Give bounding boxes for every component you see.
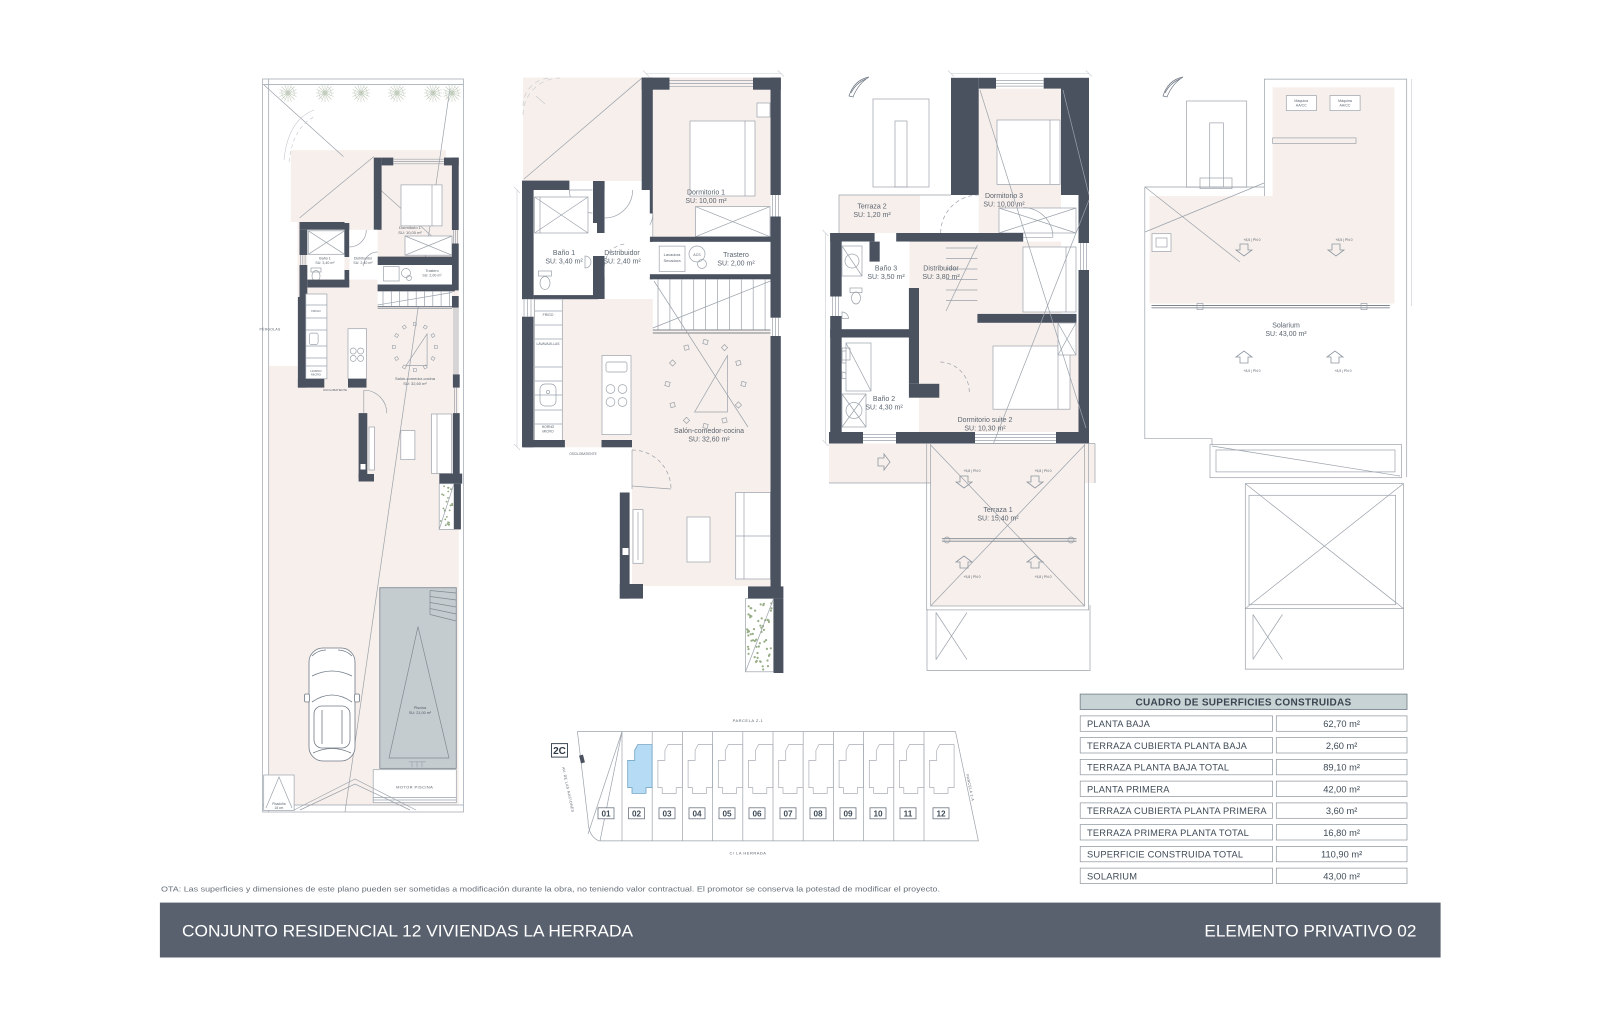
svg-text:ACS: ACS <box>693 253 701 257</box>
svg-text:Máquina: Máquina <box>1338 99 1352 103</box>
svg-text:TERRAZA CUBIERTA PLANTA PRIMER: TERRAZA CUBIERTA PLANTA PRIMERA <box>1087 806 1267 816</box>
svg-text:16,80 m²: 16,80 m² <box>1323 828 1360 838</box>
svg-text:Máquina: Máquina <box>1294 99 1308 103</box>
svg-text:TERRAZA CUBIERTA PLANTA BAJA: TERRAZA CUBIERTA PLANTA BAJA <box>1087 741 1248 751</box>
svg-text:SU: 2,40 m²: SU: 2,40 m² <box>353 261 373 265</box>
svg-text:110,90 m²: 110,90 m² <box>1321 850 1362 860</box>
svg-text:07: 07 <box>783 809 793 818</box>
svg-text:SU: 3,80 m²: SU: 3,80 m² <box>922 274 960 281</box>
svg-text:MICRO: MICRO <box>311 373 322 377</box>
svg-text:Piscina: Piscina <box>414 706 427 710</box>
svg-text:SU: 2,00 m²: SU: 2,00 m² <box>422 273 442 277</box>
svg-text:Trastero: Trastero <box>425 269 438 273</box>
svg-text:Terraza 2: Terraza 2 <box>857 204 886 211</box>
svg-text:OSCILOBATIENTE: OSCILOBATIENTE <box>323 388 347 392</box>
svg-text:AA/CC: AA/CC <box>1340 104 1351 108</box>
svg-text:SU: 10,00 m²: SU: 10,00 m² <box>983 202 1025 209</box>
svg-text:43,00 m²: 43,00 m² <box>1323 871 1360 881</box>
svg-text:Dormitorio suite 2: Dormitorio suite 2 <box>958 417 1013 424</box>
svg-text:PÉRGOLAS: PÉRGOLAS <box>259 327 280 332</box>
svg-text:OSCILOBATIENTE: OSCILOBATIENTE <box>569 452 596 456</box>
svg-text:FRIGO: FRIGO <box>311 309 321 313</box>
svg-text:C/ LA HERRADA: C/ LA HERRADA <box>730 851 767 856</box>
svg-text:62,70 m²: 62,70 m² <box>1323 719 1360 729</box>
svg-text:OTA: Las superficies y dimensi: OTA: Las superficies y dimensiones de es… <box>161 885 940 894</box>
svg-text:Solarium: Solarium <box>1272 323 1300 330</box>
svg-text:SU: 10,00 m²: SU: 10,00 m² <box>398 230 422 235</box>
svg-text:ELEMENTO PRIVATIVO 02: ELEMENTO PRIVATIVO 02 <box>1204 922 1416 941</box>
svg-text:SU: 15,40 m²: SU: 15,40 m² <box>977 516 1019 523</box>
svg-text:SU: 1,20 m²: SU: 1,20 m² <box>853 212 891 219</box>
svg-text:06: 06 <box>752 809 762 818</box>
svg-text:MICRO: MICRO <box>542 429 554 433</box>
svg-text:SU: 4,30 m²: SU: 4,30 m² <box>865 405 903 412</box>
svg-text:TERRAZA PLANTA BAJA TOTAL: TERRAZA PLANTA BAJA TOTAL <box>1087 763 1229 773</box>
svg-text:CONJUNTO RESIDENCIAL 12 VIVIEN: CONJUNTO RESIDENCIAL 12 VIVIENDAS LA HER… <box>182 922 634 941</box>
svg-text:Baño 1: Baño 1 <box>553 250 575 257</box>
svg-text:CUADRO DE SUPERFICIES CONSTRUI: CUADRO DE SUPERFICIES CONSTRUIDAS <box>1135 698 1351 709</box>
svg-text:08: 08 <box>813 809 823 818</box>
svg-text:Baño 3: Baño 3 <box>875 266 897 273</box>
svg-text:11: 11 <box>904 809 913 818</box>
svg-text:SU: 43,00 m²: SU: 43,00 m² <box>1265 331 1307 338</box>
svg-text:SU: 3,40 m²: SU: 3,40 m² <box>545 259 583 266</box>
svg-text:SU: 21,00 m²: SU: 21,00 m² <box>409 711 432 715</box>
svg-text:Terraza 1: Terraza 1 <box>983 507 1012 514</box>
svg-text:3,60 m²: 3,60 m² <box>1326 806 1358 816</box>
svg-text:PLANTA PRIMERA: PLANTA PRIMERA <box>1087 784 1170 794</box>
svg-text:Distribuidor: Distribuidor <box>604 250 640 257</box>
svg-text:SU: 3,50 m²: SU: 3,50 m² <box>867 274 905 281</box>
svg-text:09: 09 <box>843 809 853 818</box>
svg-text:42,00 m²: 42,00 m² <box>1323 784 1360 794</box>
svg-text:MOTOR PISCINA: MOTOR PISCINA <box>396 785 433 790</box>
svg-text:+5,8 | PN 0: +5,8 | PN 0 <box>1035 469 1052 473</box>
svg-text:2C: 2C <box>553 746 566 757</box>
svg-text:SUPERFICIE CONSTRUIDA TOTAL: SUPERFICIE CONSTRUIDA TOTAL <box>1087 850 1243 860</box>
svg-text:+5,8 | PN 0: +5,8 | PN 0 <box>964 575 981 579</box>
svg-text:SOLARIUM: SOLARIUM <box>1087 871 1137 881</box>
svg-text:SU: 2,40 m²: SU: 2,40 m² <box>603 259 641 266</box>
svg-text:Secadora: Secadora <box>663 258 681 263</box>
svg-text:+8,5 | PN 0: +8,5 | PN 0 <box>1335 369 1352 373</box>
svg-text:+8,5 | PN 0: +8,5 | PN 0 <box>1244 369 1261 373</box>
svg-text:+5,8 | PN 0: +5,8 | PN 0 <box>964 469 981 473</box>
svg-text:Salón-comedor-cocina: Salón-comedor-cocina <box>674 428 744 435</box>
svg-text:01: 01 <box>601 809 611 818</box>
svg-text:Distribuidor: Distribuidor <box>923 266 959 273</box>
svg-text:+8,5 | PN 0: +8,5 | PN 0 <box>1244 238 1261 242</box>
svg-text:+8,5 | PN 0: +8,5 | PN 0 <box>1336 238 1353 242</box>
svg-text:FRIGO: FRIGO <box>543 313 554 317</box>
svg-text:SU: 2,00 m²: SU: 2,00 m² <box>717 261 755 268</box>
svg-text:Trastero: Trastero <box>723 252 749 259</box>
svg-text:SU: 32,60 m²: SU: 32,60 m² <box>688 437 730 444</box>
svg-text:03: 03 <box>662 809 672 818</box>
svg-text:AA/CC: AA/CC <box>1296 104 1307 108</box>
svg-text:PARCELA Z-1: PARCELA Z-1 <box>733 718 764 723</box>
svg-text:Distribuidor: Distribuidor <box>354 257 373 261</box>
svg-text:18 cm: 18 cm <box>275 806 284 810</box>
svg-text:05: 05 <box>722 809 732 818</box>
svg-text:2,60 m²: 2,60 m² <box>1326 741 1358 751</box>
svg-text:HORNO: HORNO <box>542 425 555 429</box>
svg-text:Lavadora: Lavadora <box>664 252 681 257</box>
svg-text:PLANTA BAJA: PLANTA BAJA <box>1087 719 1151 729</box>
svg-text:SU: 3,40 m²: SU: 3,40 m² <box>315 261 335 265</box>
svg-text:02: 02 <box>632 809 642 818</box>
svg-text:SU: 10,00 m²: SU: 10,00 m² <box>685 198 727 205</box>
svg-text:Dormitorio 1: Dormitorio 1 <box>687 190 725 197</box>
svg-text:89,10 m²: 89,10 m² <box>1323 763 1360 773</box>
svg-text:12: 12 <box>936 809 946 818</box>
svg-text:04: 04 <box>692 809 702 818</box>
svg-text:+5,8 | PN 0: +5,8 | PN 0 <box>1035 575 1052 579</box>
svg-text:Baño 2: Baño 2 <box>873 396 895 403</box>
svg-text:10: 10 <box>873 809 883 818</box>
svg-text:SU: 32,60 m²: SU: 32,60 m² <box>403 381 427 386</box>
svg-text:TERRAZA PRIMERA PLANTA TOTAL: TERRAZA PRIMERA PLANTA TOTAL <box>1087 828 1249 838</box>
svg-text:Dormitorio 3: Dormitorio 3 <box>985 193 1023 200</box>
svg-text:Baño 1: Baño 1 <box>319 257 330 261</box>
svg-text:LAVAVAJILLAS: LAVAVAJILLAS <box>536 342 560 346</box>
